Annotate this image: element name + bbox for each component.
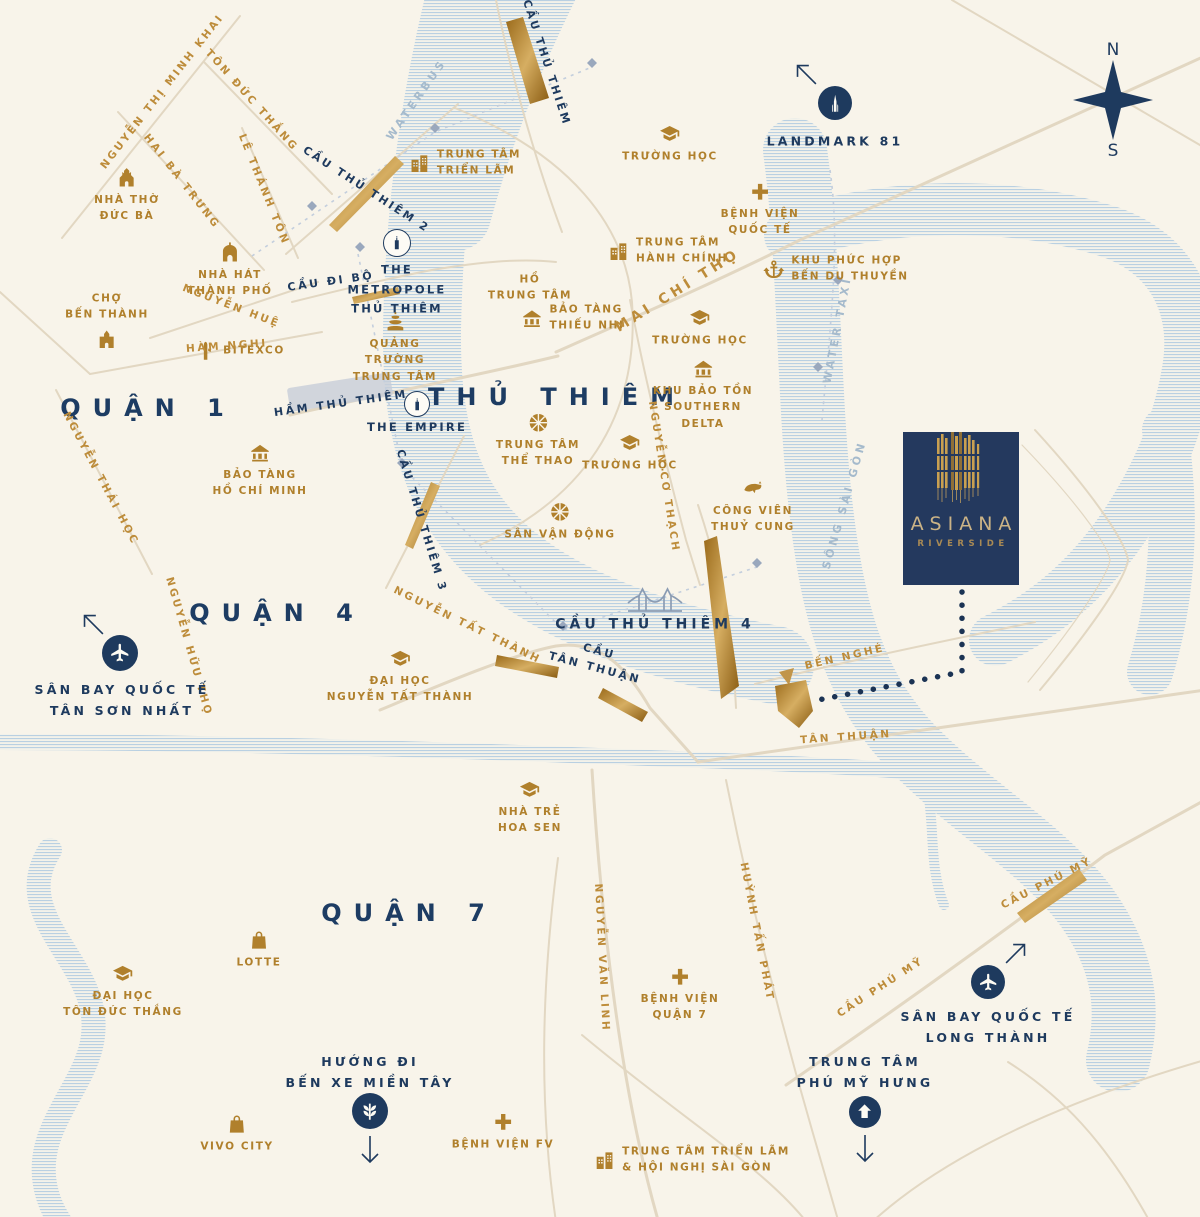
poi-benh-vien-quoc-te: BỆNH VIỆN QUỐC TẾ	[721, 181, 800, 239]
building-icon	[608, 241, 629, 262]
marker-the-empire	[404, 391, 430, 417]
plane-icon	[109, 642, 131, 664]
whale-icon	[743, 478, 764, 499]
poi-label: CÔNG VIÊN THUỶ CUNG	[711, 503, 795, 536]
project-logo-card: ASIANA RIVERSIDE	[903, 432, 1019, 585]
poi-label: TRUNG TÂM TRIỂN LÃM & HỘI NGHỊ SÀI GÒN	[622, 1144, 790, 1177]
poi-label: ĐẠI HỌC NGUYỄN TẤT THÀNH	[327, 673, 474, 706]
poi-bao-tang-thieu-nhi: BẢO TÀNG THIẾU NHI	[521, 302, 624, 335]
road-label-waterbus: WATERBUS	[383, 56, 452, 144]
district-label-quan-7: QUẬN 7	[321, 899, 497, 927]
museum-icon	[521, 308, 542, 329]
poi-khu-bao-ton-southern-delta: KHU BẢO TỒN SOUTHERN DELTA	[653, 358, 753, 432]
poi-label: NHÀ TRẺ HOA SEN	[498, 804, 562, 837]
poi-cong-vien-thuy-cung: CÔNG VIÊN THUỶ CUNG	[711, 478, 795, 536]
district-label-quan-4: QUẬN 4	[189, 599, 365, 627]
road-label-tan-thuan: TÂN THUẬN	[800, 727, 893, 749]
marker-arrow-san-bay-long-thanh	[995, 932, 1036, 973]
hospital-icon	[670, 966, 691, 987]
marker-label-the-empire: THE EMPIRE	[367, 418, 467, 438]
marker-label-san-bay-tan-son-nhat: SÂN BAY QUỐC TẾ TÂN SƠN NHẤT	[35, 679, 210, 722]
poi-label: KHU BẢO TỒN SOUTHERN DELTA	[653, 383, 753, 432]
poi-tt-trien-lam-hoi-nghi-sai-gon: TRUNG TÂM TRIỂN LÃM & HỘI NGHỊ SÀI GÒN	[594, 1144, 790, 1177]
poi-trung-tam-trien-lam: TRUNG TÂM TRIỂN LÃM	[409, 147, 521, 180]
poi-quang-truong-trung-tam: QUẢNG TRƯỜNG TRUNG TÂM	[353, 311, 437, 385]
poi-benh-vien-fv: BỆNH VIỆN FV	[452, 1111, 555, 1152]
school-icon	[660, 123, 681, 144]
compass-south-label: S	[1108, 141, 1119, 161]
poi-label: BỆNH VIỆN QUẬN 7	[641, 991, 720, 1024]
direction-arrow-icon	[785, 53, 826, 94]
direction-arrow-icon	[995, 932, 1036, 973]
map-labels-layer: QUẬN 1THỦ THIÊMQUẬN 4QUẬN 7NHÀ THỜ ĐỨC B…	[0, 0, 1200, 1217]
marker-label-landmark-81: LANDMARK 81	[767, 130, 904, 151]
poi-san-van-dong: SÂN VẬN ĐỘNG	[504, 501, 615, 542]
marker-landmark-81	[818, 86, 852, 120]
poi-label: NHÀ THỜ ĐỨC BÀ	[94, 192, 160, 225]
poi-trung-tam-the-thao: TRUNG TÂM THỂ THAO	[496, 412, 580, 470]
bag-icon	[227, 1113, 248, 1134]
asiana-building-logo	[929, 432, 993, 508]
road-label-cau-thu-thiem-4: CẦU THỦ THIÊM 4	[555, 615, 754, 636]
museum-icon	[250, 442, 271, 463]
road-label-cau-phu-my-2: CẦU PHÚ MỸ	[999, 854, 1096, 914]
project-name: ASIANA	[905, 513, 1018, 535]
building-icon	[594, 1150, 615, 1171]
school-icon	[113, 963, 134, 984]
poi-nha-tho-duc-ba: NHÀ THỜ ĐỨC BÀ	[94, 167, 160, 225]
marker-label-ben-xe-mien-tay: HƯỚNG ĐI BẾN XE MIỀN TÂY	[286, 1051, 455, 1094]
road-label-huynh-tan-phat: HUỲNH TẤN PHÁT	[735, 861, 777, 1003]
school-icon	[690, 307, 711, 328]
poi-ho-trung-tam: HỒ TRUNG TÂM	[488, 272, 572, 305]
direction-arrow-icon	[357, 1134, 383, 1166]
marker-arrow-ben-xe-mien-tay	[357, 1134, 383, 1166]
district-label-quan-1: QUẬN 1	[60, 394, 236, 422]
poi-label: BỆNH VIỆN FV	[452, 1136, 555, 1152]
road-label-cau-thu-thiem-3: CẦU THỦ THIÊM 3	[391, 448, 450, 595]
road-label-cau-tan-thuan: CẦU TÂN THUẬN	[547, 632, 647, 688]
road-label-cau-thu-thiem: CẦU THỦ THIÊM	[518, 0, 574, 128]
poi-dai-hoc-ton-duc-thang: ĐẠI HỌC TÔN ĐỨC THẮNG	[63, 963, 183, 1021]
museum-icon	[692, 358, 713, 379]
road-label-ben-nghe: BẾN NGHÉ	[803, 641, 886, 675]
school-icon	[620, 432, 641, 453]
poi-label: ĐẠI HỌC TÔN ĐỨC THẮNG	[63, 988, 183, 1021]
marker-san-bay-tan-son-nhat	[102, 635, 138, 671]
church-icon	[117, 167, 138, 188]
road-label-song-sai-gon: SÔNG SÀI GÒN	[819, 439, 872, 572]
road-label-water-taxi: WATER TAXI	[819, 275, 856, 385]
poi-benh-vien-quan-7: BỆNH VIỆN QUẬN 7	[641, 966, 720, 1024]
road-label-nguyen-van-linh: NGUYỄN VĂN LINH	[589, 883, 613, 1033]
marker-label-trung-tam-phu-my-hung: TRUNG TÂM PHÚ MỸ HƯNG	[797, 1051, 934, 1094]
poi-nha-tre-hoa-sen: NHÀ TRẺ HOA SEN	[498, 779, 562, 837]
road-label-nguyen-thai-hoc: NGUYỄN THÁI HỌC	[58, 409, 142, 548]
location-map: QUẬN 1THỦ THIÊMQUẬN 4QUẬN 7NHÀ THỜ ĐỨC B…	[0, 0, 1200, 1217]
housearrow-icon	[855, 1102, 874, 1121]
poi-label: TRUNG TÂM TRIỂN LÃM	[437, 147, 521, 180]
poi-truong-hoc-1: TRƯỜNG HỌC	[622, 123, 718, 164]
mbuild-icon	[410, 397, 424, 411]
hospital-icon	[750, 181, 771, 202]
market-icon	[96, 328, 117, 349]
theater-icon	[220, 242, 241, 263]
poi-label: SÂN VẬN ĐỘNG	[504, 526, 615, 542]
school-icon	[389, 648, 410, 669]
ball-icon	[549, 501, 570, 522]
project-subtitle: RIVERSIDE	[913, 539, 1008, 549]
poi-label: BẢO TÀNG HỒ CHÍ MINH	[213, 467, 308, 500]
poi-label: VIVO CITY	[200, 1138, 273, 1154]
marker-arrow-landmark-81	[785, 53, 826, 94]
hospital-icon	[493, 1111, 514, 1132]
mbuild-icon	[389, 235, 405, 251]
poi-lotte: LOTTE	[237, 929, 282, 970]
poi-label: TRƯỜNG HỌC	[652, 332, 748, 348]
wheat-icon	[359, 1100, 381, 1122]
bag-icon	[248, 929, 269, 950]
direction-arrow-icon	[852, 1133, 878, 1165]
poi-label: TRƯỜNG HỌC	[622, 148, 718, 164]
poi-label: TRUNG TÂM THỂ THAO	[496, 437, 580, 470]
poi-label: BỆNH VIỆN QUỐC TẾ	[721, 206, 800, 239]
poi-cho-ben-thanh: CHỢ BẾN THÀNH	[65, 291, 149, 350]
poi-truong-hoc-2: TRƯỜNG HỌC	[652, 307, 748, 348]
ball-icon	[527, 412, 548, 433]
marker-ben-xe-mien-tay	[352, 1093, 388, 1129]
marker-the-metropole-thu-thiem	[383, 229, 411, 257]
poi-vivo-city: VIVO CITY	[200, 1113, 273, 1154]
marker-san-bay-long-thanh	[971, 965, 1005, 999]
marker-trung-tam-phu-my-hung	[849, 1096, 881, 1128]
compass-north-label: N	[1107, 40, 1120, 60]
school-icon	[520, 779, 541, 800]
building-icon	[409, 153, 430, 174]
marker-arrow-trung-tam-phu-my-hung	[852, 1133, 878, 1165]
poi-label: QUẢNG TRƯỜNG TRUNG TÂM	[353, 336, 437, 385]
poi-dai-hoc-nguyen-tat-thanh: ĐẠI HỌC NGUYỄN TẤT THÀNH	[327, 648, 474, 706]
anchor-icon	[763, 259, 784, 280]
tower81-icon	[825, 93, 845, 113]
poi-label: HỒ TRUNG TÂM	[488, 272, 572, 305]
poi-bao-tang-ho-chi-minh: BẢO TÀNG HỒ CHÍ MINH	[213, 442, 308, 500]
marker-label-the-metropole-thu-thiem: THE METROPOLE THỦ THIÊM	[348, 261, 447, 320]
poi-khu-phuc-hop-ben-du-thuyen: KHU PHỨC HỢP BẾN DU THUYỀN	[763, 253, 908, 286]
poi-label: LOTTE	[237, 954, 282, 970]
plane-icon	[978, 972, 998, 992]
poi-label: CHỢ BẾN THÀNH	[65, 291, 149, 324]
road-label-ham-thu-thiem: HẦM THỦ THIÊM	[273, 386, 409, 421]
marker-label-san-bay-long-thanh: SÂN BAY QUỐC TẾ LONG THÀNH	[901, 1006, 1076, 1049]
